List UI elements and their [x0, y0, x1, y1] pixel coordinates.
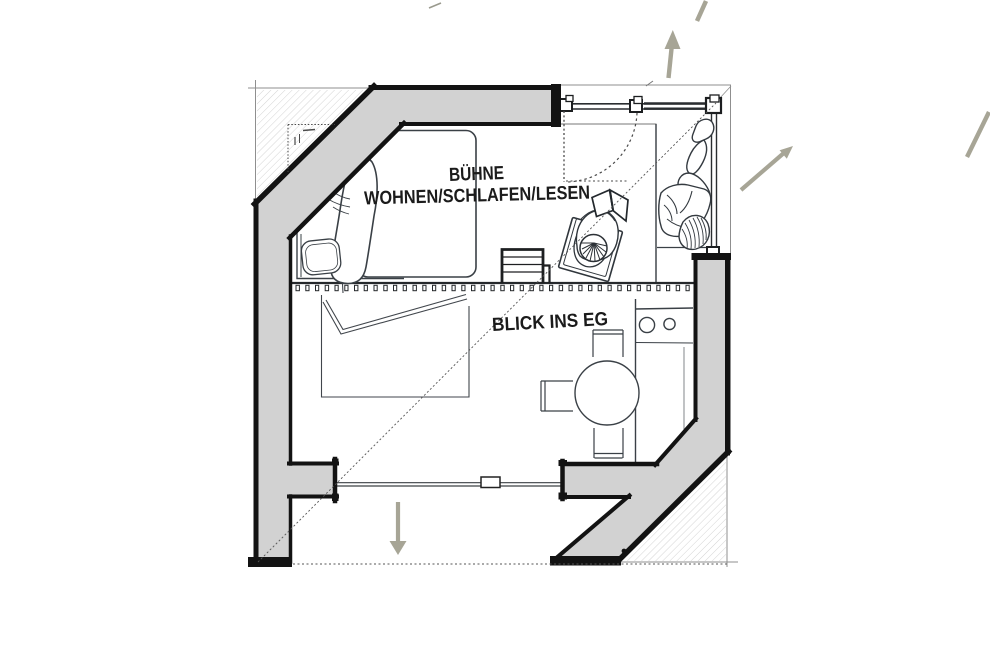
svg-text:BÜHNE: BÜHNE [449, 163, 505, 186]
